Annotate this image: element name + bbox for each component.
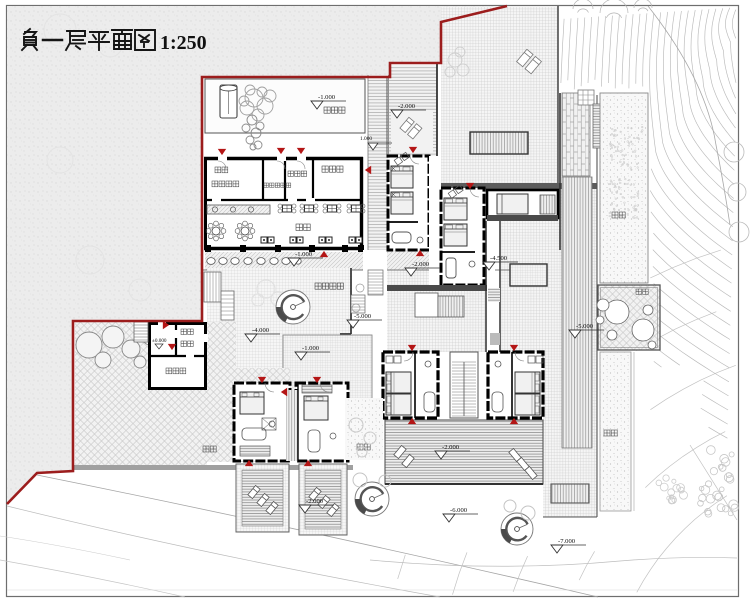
svg-text:1.000: 1.000 xyxy=(360,136,372,142)
svg-text:-5.000: -5.000 xyxy=(576,323,594,330)
svg-text:-2.000: -2.000 xyxy=(398,103,416,110)
svg-text:±0.000: ±0.000 xyxy=(152,338,167,344)
svg-text:-2.000: -2.000 xyxy=(442,444,460,451)
svg-text:1:250: 1:250 xyxy=(160,32,207,54)
svg-text:-5.000: -5.000 xyxy=(354,313,372,320)
svg-text:-2.000: -2.000 xyxy=(306,498,324,505)
svg-text:-7.000: -7.000 xyxy=(558,538,576,545)
svg-text:-1.000: -1.000 xyxy=(318,94,336,101)
svg-text:-1.000: -1.000 xyxy=(302,345,320,352)
svg-text:-4.000: -4.000 xyxy=(252,327,270,334)
svg-text:-4.500: -4.500 xyxy=(490,255,508,262)
svg-text:-2.000: -2.000 xyxy=(412,261,430,268)
svg-text:-6.000: -6.000 xyxy=(450,507,468,514)
svg-text:-1.000: -1.000 xyxy=(295,251,313,258)
